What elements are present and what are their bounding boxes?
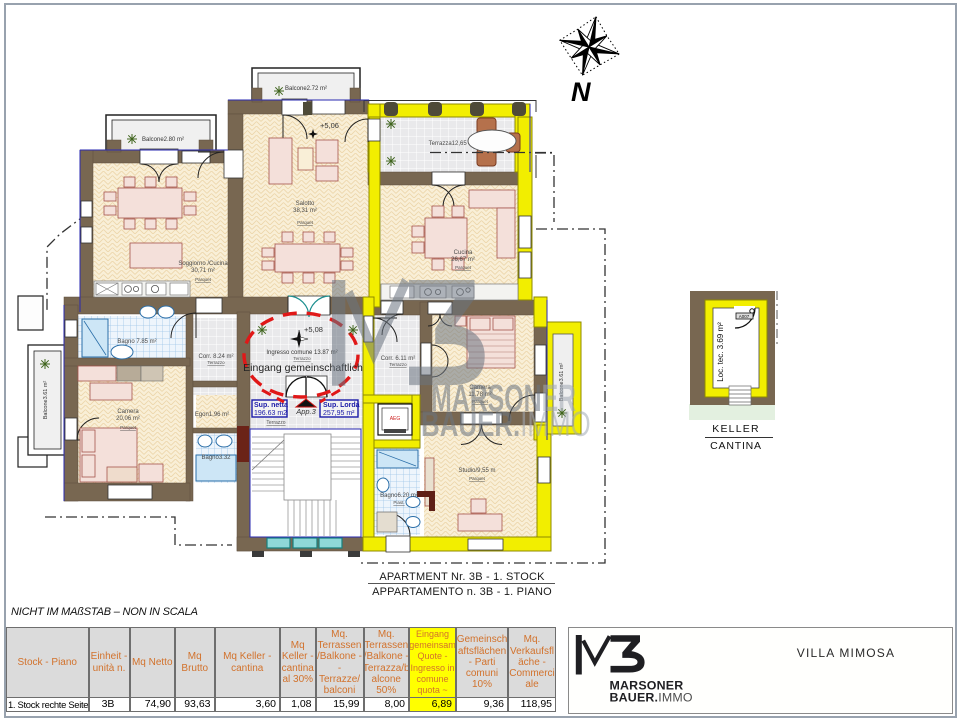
svg-text:Cucina: Cucina [454,250,473,256]
svg-text:Salotto: Salotto [296,201,315,207]
svg-text:Camera: Camera [117,409,139,415]
svg-text:Balcone2.72 m²: Balcone2.72 m² [285,86,327,92]
svg-text:+5,06: +5,06 [320,121,339,130]
svg-text:Balcone3.61 m²: Balcone3.61 m² [43,381,49,420]
svg-text:Parquet: Parquet [195,277,212,282]
svg-text:38,31 m²: 38,31 m² [293,208,317,214]
svg-text:App.3: App.3 [295,407,316,416]
svg-text:N: N [571,77,591,107]
svg-text:Bagno6.20 m²: Bagno6.20 m² [380,493,418,499]
svg-text:Bagno3.32: Bagno3.32 [201,455,231,461]
svg-text:BAUER.IMMO: BAUER.IMMO [421,404,591,444]
svg-text:Parquet: Parquet [469,476,486,481]
svg-text:Terrazzo: Terrazzo [266,420,285,426]
svg-text:30,71 m²: 30,71 m² [191,268,215,274]
svg-text:Terrazzo: Terrazzo [207,360,225,365]
svg-text:AEG: AEG [390,416,401,422]
svg-text:Terrazzo: Terrazzo [389,362,407,367]
svg-text:Parquet: Parquet [120,425,137,430]
svg-text:Terrazzo: Terrazzo [293,356,311,361]
svg-text:A007: A007 [739,314,750,319]
svg-text:196.63 m2: 196.63 m2 [254,410,287,417]
svg-text:Bagno 7.85 m²: Bagno 7.85 m² [117,339,156,345]
svg-text:+5,08: +5,08 [304,325,323,334]
svg-text:26,67 m²: 26,67 m² [451,257,475,263]
svg-text:Piast.: Piast. [393,500,404,505]
svg-text:Parquet: Parquet [455,265,472,270]
svg-text:VILLA MIMOSA: VILLA MIMOSA [797,646,895,660]
svg-text:Sup. Lorda: Sup. Lorda [323,402,360,409]
svg-text:Egon1,96 m²: Egon1,96 m² [195,412,229,418]
svg-text:Studio/9,55 m: Studio/9,55 m [458,468,495,474]
svg-text:Balcone2.80 m²: Balcone2.80 m² [142,137,184,143]
svg-text:20,06 m²: 20,06 m² [116,416,140,422]
svg-text:257,95 m²: 257,95 m² [323,410,355,417]
svg-text:BAUER.IMMO: BAUER.IMMO [610,691,693,705]
svg-text:Soggiorno /Cucina: Soggiorno /Cucina [178,261,228,267]
svg-text:Parquet: Parquet [297,220,314,225]
svg-text:Loc. tec. 3.69 m²: Loc. tec. 3.69 m² [716,322,725,382]
